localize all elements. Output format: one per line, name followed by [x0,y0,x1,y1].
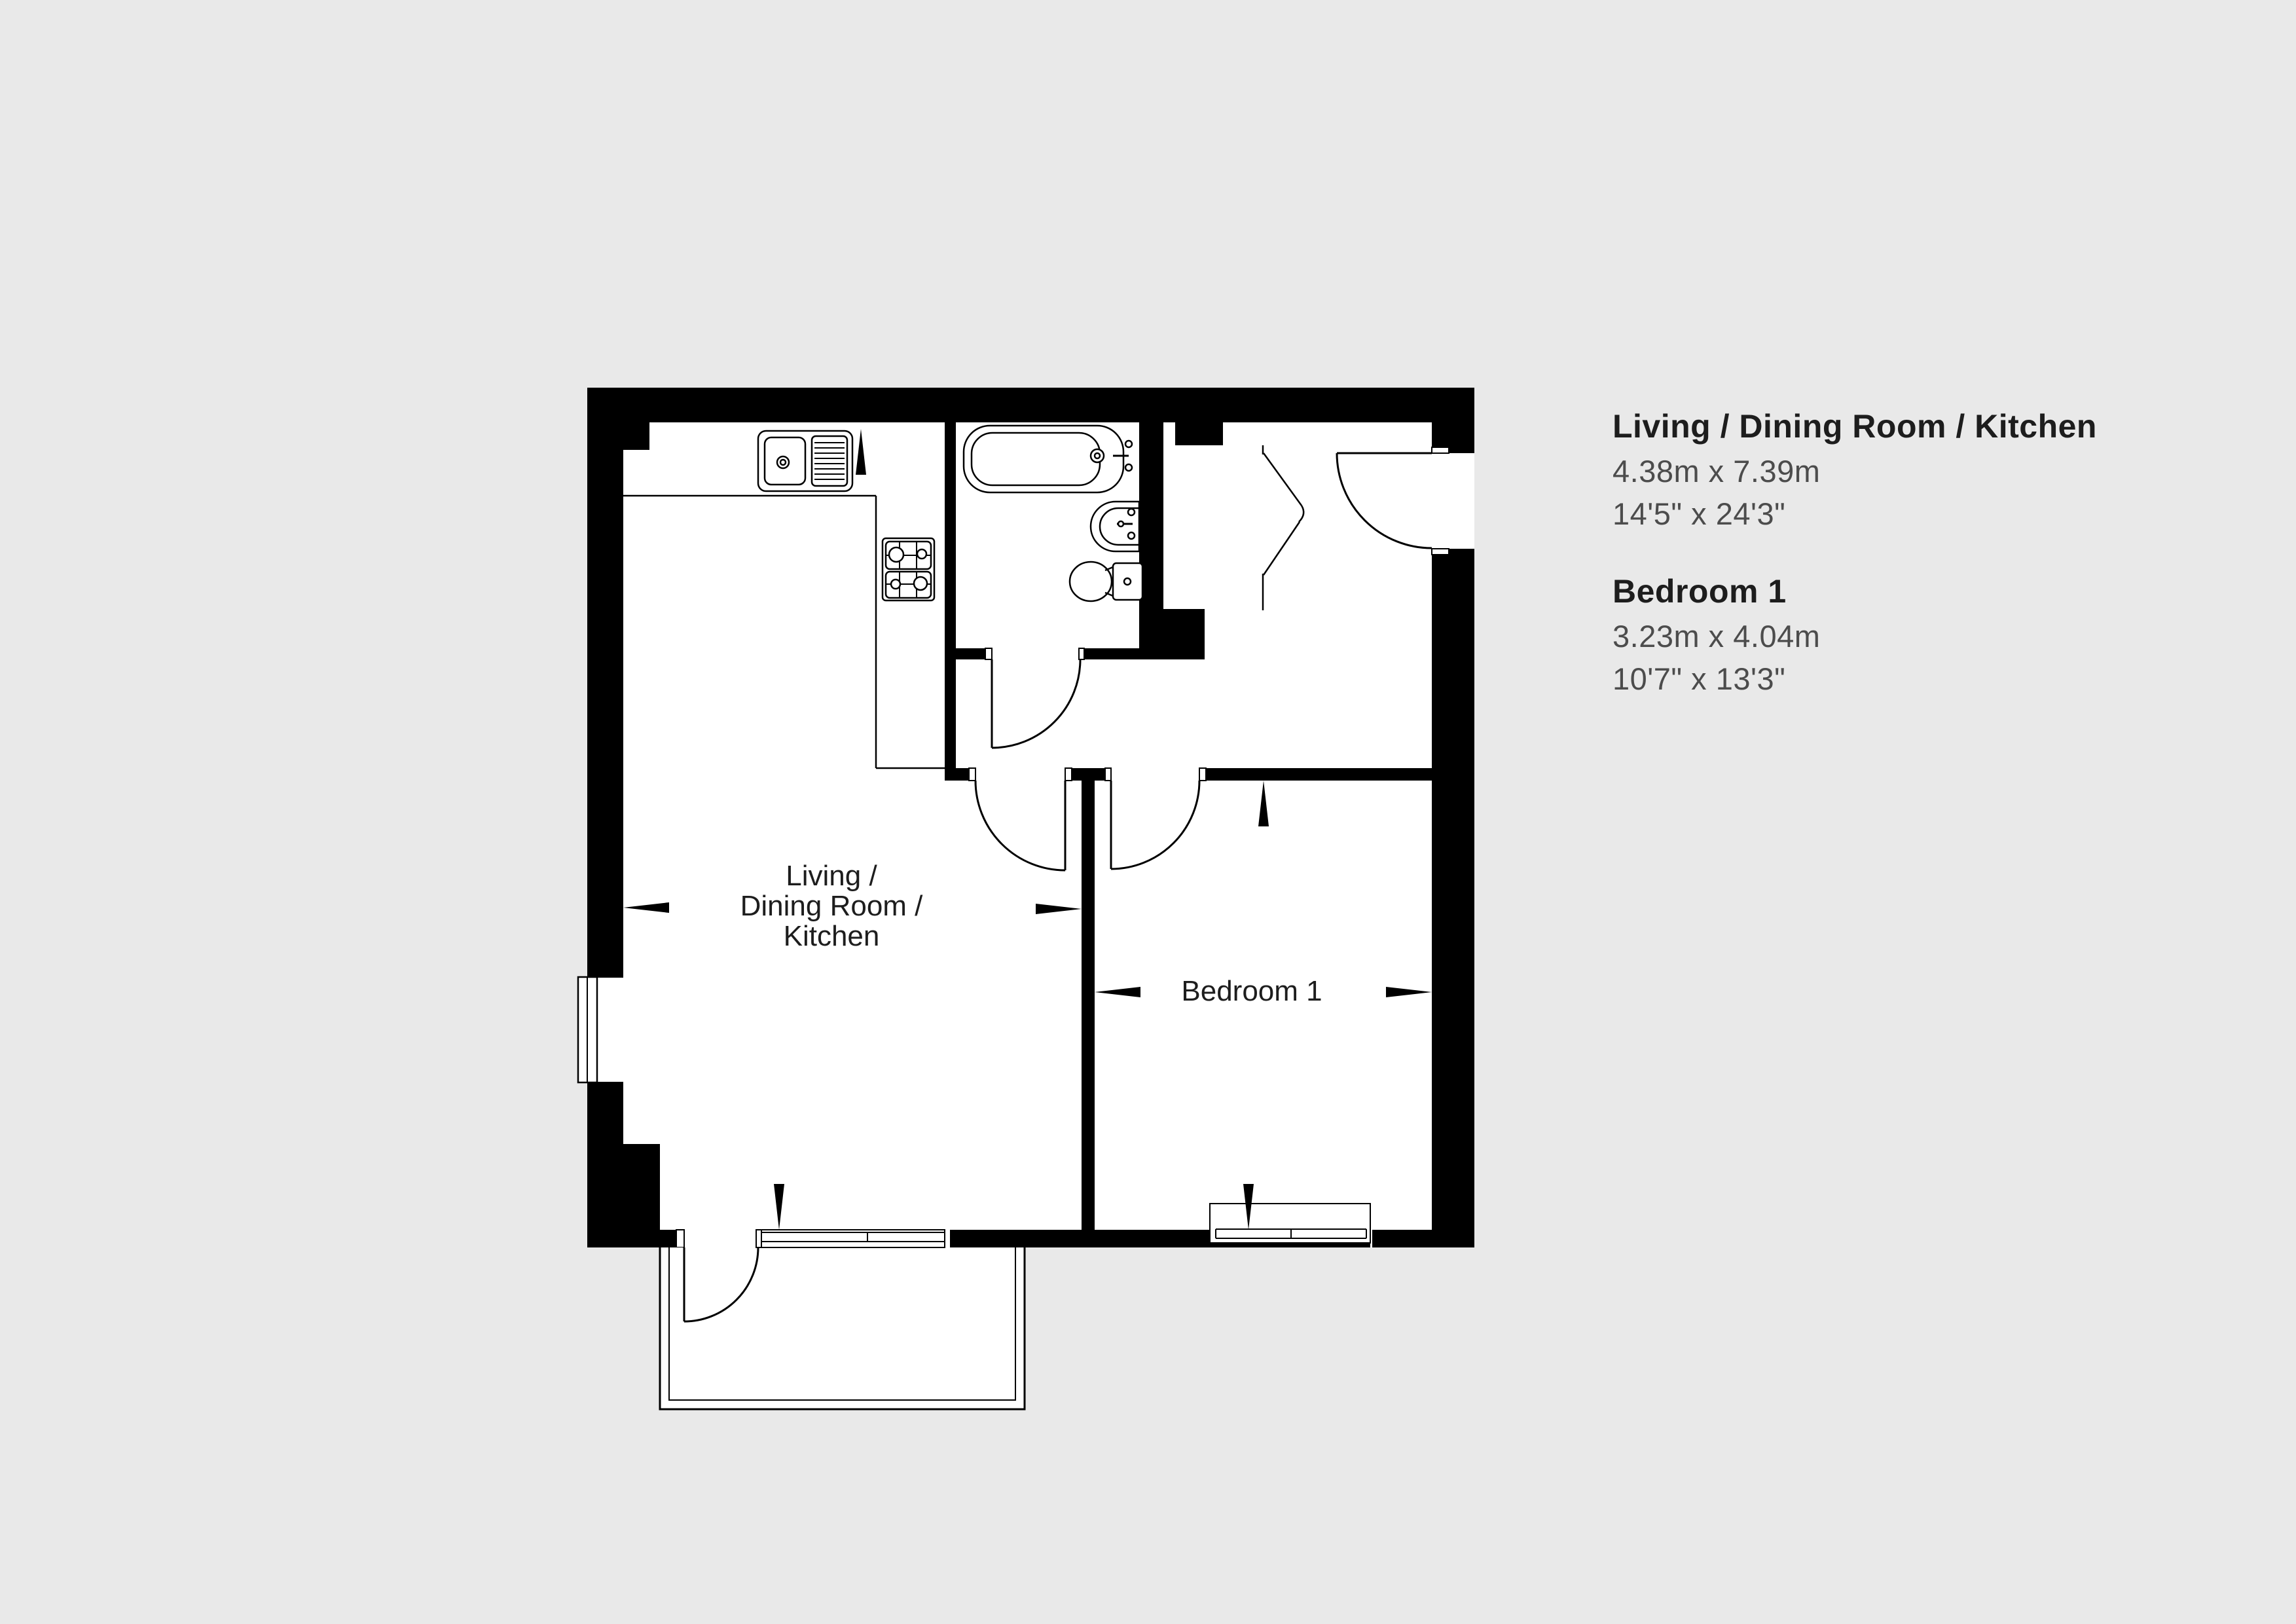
living-room-name: Living / Dining Room / Kitchen [1613,407,2267,445]
bedroom-window [1210,1204,1370,1243]
entry-door-opening [1432,453,1474,549]
room-info-bedroom: Bedroom 1 3.23m x 4.04m 10'7" x 13'3" [1613,572,2267,697]
room-info-living: Living / Dining Room / Kitchen 4.38m x 7… [1613,407,2267,532]
room-info-panel: Living / Dining Room / Kitchen 4.38m x 7… [1613,407,2267,737]
floor-plan: Living / Dining Room / Kitchen Bedroom 1 [0,0,2296,1624]
living-room-metric: 4.38m x 7.39m [1613,453,2267,489]
floor-area [587,388,1474,1247]
bedroom-imperial: 10'7" x 13'3" [1613,661,2267,697]
bedroom-name: Bedroom 1 [1613,572,2267,610]
toilet [1070,562,1142,601]
balcony-window [756,1230,950,1247]
kitchen-sink [758,431,852,491]
bedroom-metric: 3.23m x 4.04m [1613,618,2267,654]
left-window [578,977,623,1082]
living-room-imperial: 14'5" x 24'3" [1613,496,2267,532]
living-room-label-line2: Dining Room / [740,890,924,922]
floorplan-page: Living / Dining Room / Kitchen Bedroom 1… [0,0,2296,1624]
basin [1091,502,1139,551]
balcony [660,1247,1025,1409]
living-room-label-line3: Kitchen [784,920,880,952]
hob [883,538,934,600]
bedroom-label: Bedroom 1 [1181,975,1322,1007]
bathtub [964,426,1132,492]
living-room-label-line1: Living / [786,860,877,892]
